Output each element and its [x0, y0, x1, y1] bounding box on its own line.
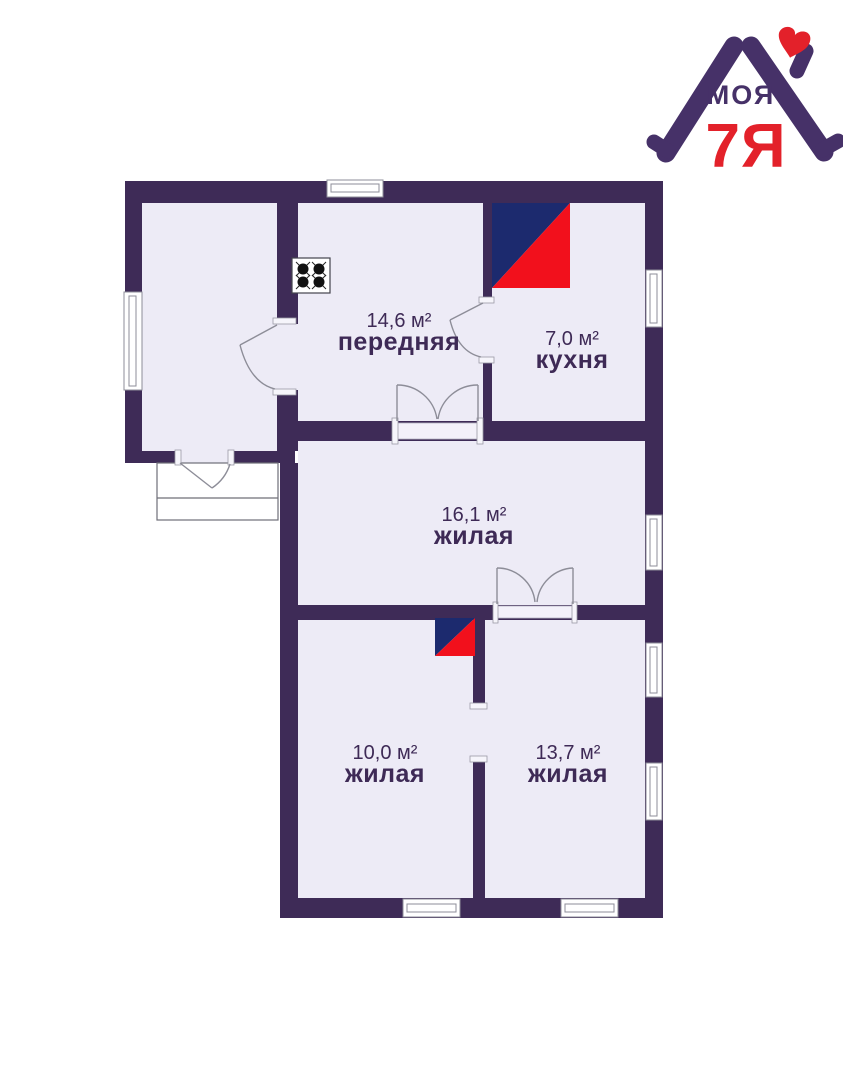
window-veranda-left [124, 292, 142, 390]
window-bottom-living-medium [561, 899, 618, 917]
floor-plan-canvas: 14,6 м² передняя 7,0 м² кухня 16,1 м² жи… [0, 0, 843, 1080]
hallway-kitchen-rooms [295, 203, 645, 421]
floor-plan-page: 14,6 м² передняя 7,0 м² кухня 16,1 м² жи… [0, 0, 843, 1080]
window-living-medium-right-upper [646, 643, 662, 697]
furnace-icon-kitchen [492, 203, 570, 288]
living-large-name-label: жилая [433, 522, 514, 550]
window-top-wall [327, 180, 383, 197]
brand-logo: МОЯ 7Я [654, 25, 838, 181]
veranda-room [142, 203, 277, 451]
living-small-name-label: жилая [344, 760, 425, 788]
logo-text-moya: МОЯ [707, 80, 776, 110]
living-medium-name-label: жилая [527, 760, 608, 788]
furnace-icon-living-small [435, 618, 475, 656]
window-bottom-living-small [403, 899, 460, 917]
gas-stove-icon [292, 258, 330, 293]
window-kitchen-right [646, 270, 662, 327]
hallway-name-label: передняя [338, 328, 460, 356]
window-living-medium-right-lower [646, 763, 662, 820]
window-living-large-right [646, 515, 662, 570]
logo-text-7ya: 7Я [705, 112, 786, 181]
room-fills [142, 203, 645, 898]
kitchen-name-label: кухня [536, 346, 609, 374]
porch-steps [157, 463, 278, 520]
